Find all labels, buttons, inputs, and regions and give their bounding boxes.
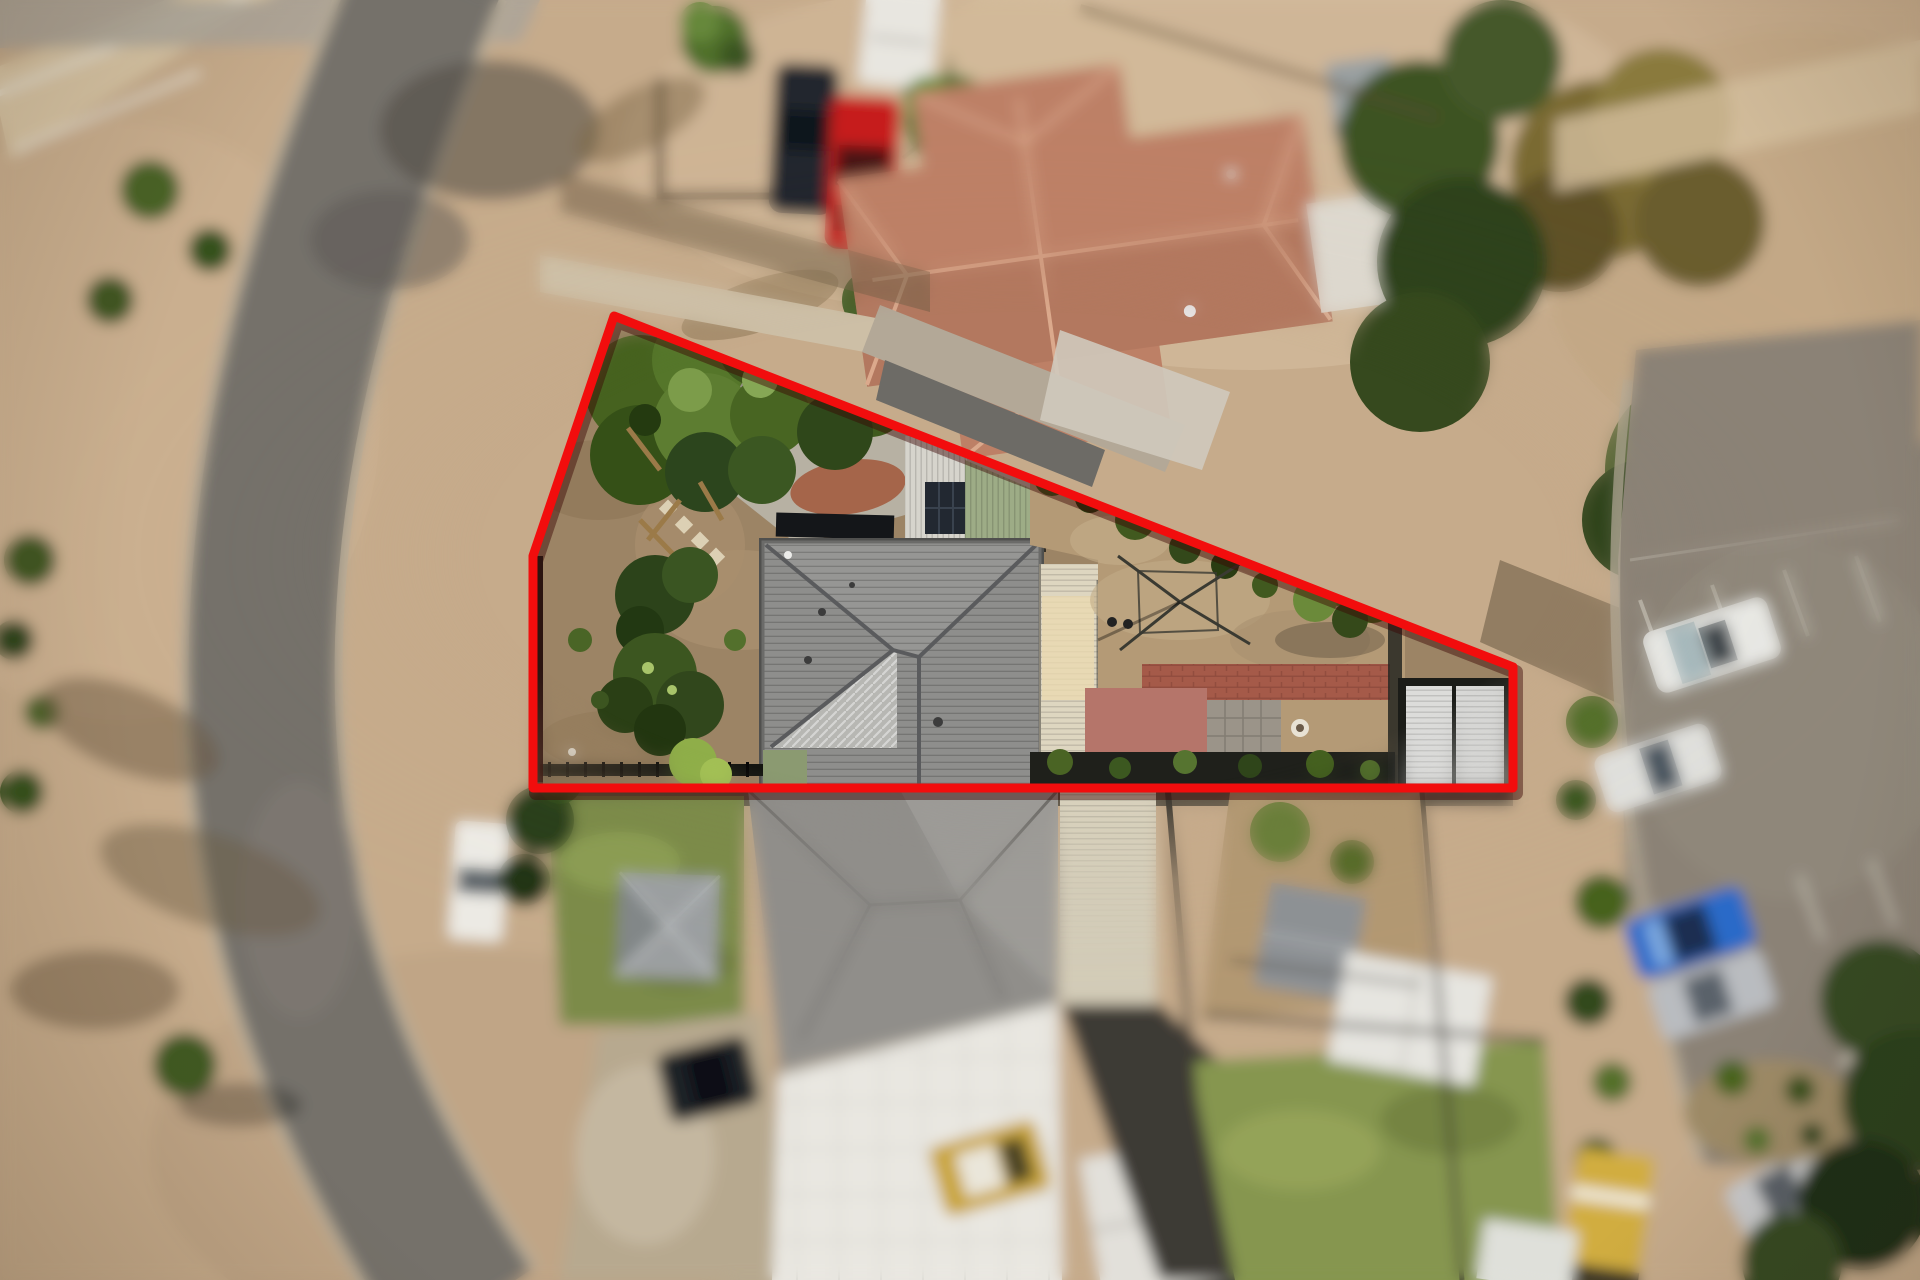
scene-canvas — [0, 0, 1920, 1280]
aerial-photo — [0, 0, 1920, 1280]
vignette — [0, 0, 1920, 1280]
